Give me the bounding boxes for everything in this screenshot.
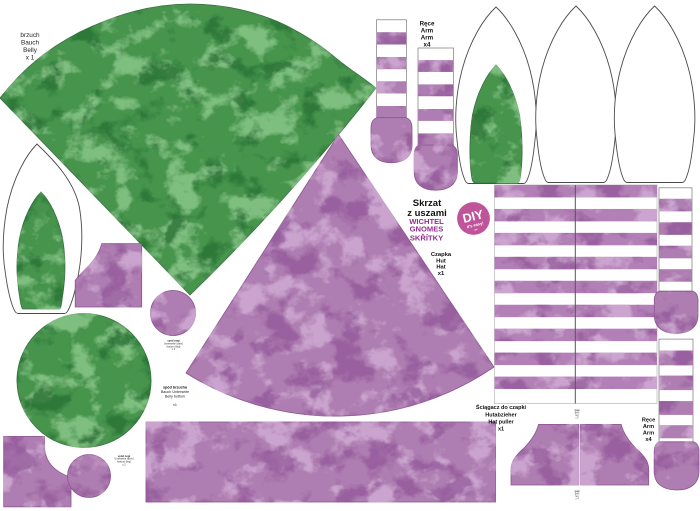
svg-text:Belly bottom: Belly bottom [165, 394, 185, 398]
svg-text:x4: x4 [424, 42, 431, 49]
svg-text:Arm: Arm [421, 28, 434, 35]
svg-text:Czapka: Czapka [431, 252, 452, 258]
svg-text:Hat: Hat [436, 265, 445, 271]
svg-text:x 1: x 1 [26, 55, 35, 62]
svg-text:Ręce: Ręce [420, 21, 435, 28]
svg-text:x4: x4 [645, 437, 652, 443]
svg-text:x 2: x 2 [122, 463, 126, 467]
svg-text:Arm: Arm [643, 424, 654, 430]
svg-text:x1: x1 [438, 271, 445, 277]
svg-text:GNOMES: GNOMES [410, 225, 444, 234]
svg-text:Ręce: Ręce [642, 418, 655, 424]
svg-text:Bauch Unterseite: Bauch Unterseite [161, 390, 189, 394]
svg-text:Arm: Arm [421, 35, 434, 42]
svg-text:Arm: Arm [643, 431, 654, 437]
svg-text:Hutabzieher: Hutabzieher [485, 412, 517, 418]
svg-text:Hat puller: Hat puller [488, 420, 514, 426]
svg-text:Ściągacz do czapki: Ściągacz do czapki [476, 404, 527, 411]
svg-text:x1: x1 [173, 403, 177, 407]
svg-text:Bauch: Bauch [21, 40, 40, 47]
svg-text:spód brzucha: spód brzucha [163, 386, 188, 390]
svg-text:Belly: Belly [23, 47, 38, 54]
svg-text:brzuch: brzuch [20, 32, 40, 39]
svg-text:x1: x1 [498, 427, 504, 433]
svg-text:SKŘÍTKY: SKŘÍTKY [410, 234, 443, 243]
svg-text:x 2: x 2 [172, 347, 176, 351]
svg-text:Hut: Hut [436, 258, 446, 264]
